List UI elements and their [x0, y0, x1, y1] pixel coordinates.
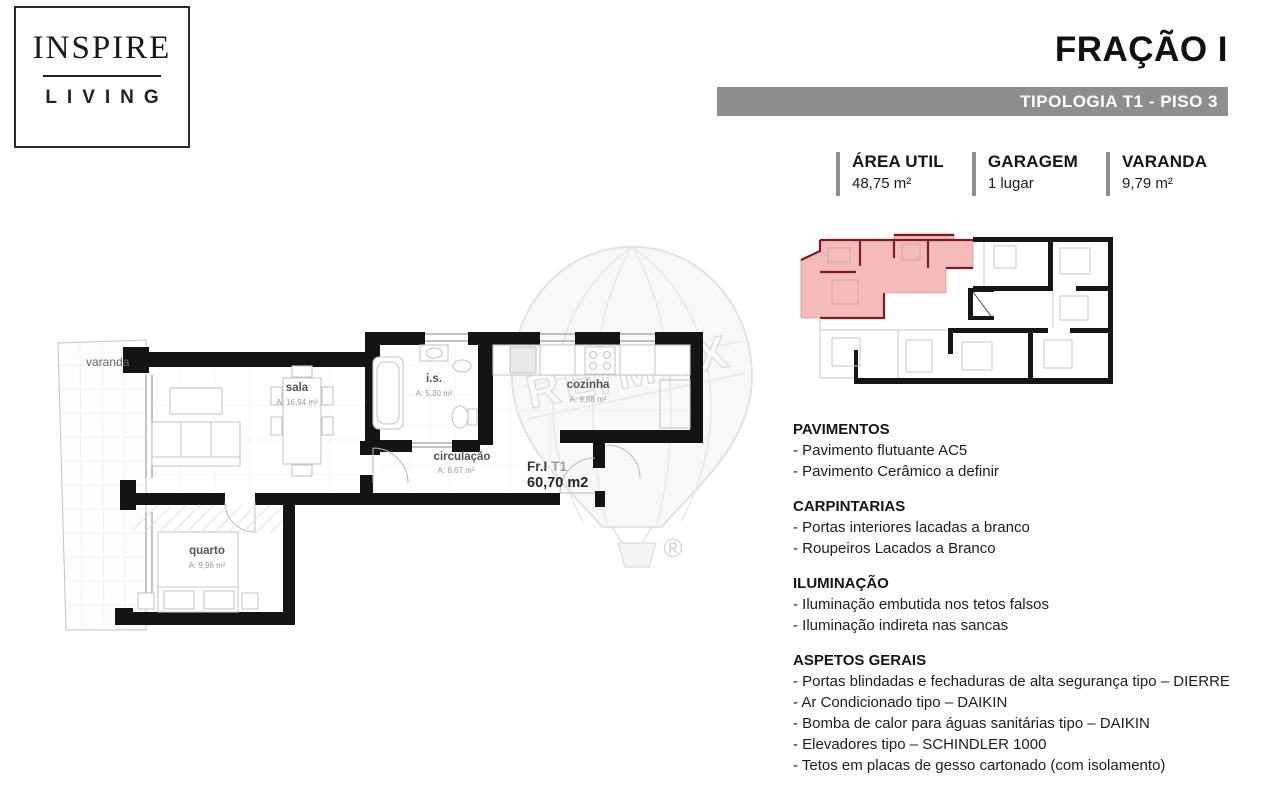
stat-divider [1106, 152, 1110, 196]
room-label-sala: sala [286, 382, 309, 394]
quarto-hatch [132, 505, 282, 533]
logo-text-living: LIVING [16, 87, 188, 109]
unit-area-label: 60,70 m2 [527, 475, 588, 491]
registered-mark: ® [663, 533, 682, 563]
stat-label: ÁREA UTIL [852, 152, 944, 172]
logo-text-inspire: INSPIRE [16, 30, 188, 67]
section-pavimentos: PAVIMENTOS - Pavimento flutuante AC5 - P… [793, 419, 1263, 482]
room-area-is: A: 5,30 m² [416, 389, 453, 398]
section-item: - Pavimento Cerâmico a definir [793, 461, 1263, 482]
room-area-quarto: A: 9,96 m² [189, 561, 226, 570]
stat-value: 48,75 m² [852, 175, 944, 192]
section-iluminacao: ILUMINAÇÃO - Iluminação embutida nos tet… [793, 573, 1263, 636]
balloon-basket [618, 543, 656, 567]
section-title: ILUMINAÇÃO [793, 573, 1263, 594]
unit-floor-plan: RE/MAX ® [30, 235, 770, 655]
inspire-living-logo: INSPIRE LIVING [14, 6, 190, 148]
room-label-is: i.s. [426, 373, 442, 385]
page-title: FRAÇÃO I [628, 30, 1228, 70]
section-item: - Tetos em placas de gesso cartonado (co… [793, 755, 1263, 776]
stat-label: VARANDA [1122, 152, 1207, 172]
section-title: ASPETOS GERAIS [793, 650, 1263, 671]
section-item: - Iluminação indireta nas sancas [793, 615, 1263, 636]
section-title: CARPINTARIAS [793, 496, 1263, 517]
typology-bar-label: TIPOLOGIA T1 - PISO 3 [1020, 92, 1228, 112]
brochure-page: INSPIRE LIVING FRAÇÃO I TIPOLOGIA T1 - P… [0, 0, 1280, 790]
room-label-quarto: quarto [189, 545, 225, 557]
section-item: - Roupeiros Lacados a Branco [793, 538, 1263, 559]
room-area-circulacao: A: 6,67 m² [438, 466, 475, 475]
specs-column: PAVIMENTOS - Pavimento flutuante AC5 - P… [793, 419, 1263, 790]
section-item: - Iluminação embutida nos tetos falsos [793, 594, 1263, 615]
section-item: - Ar Condicionado tipo – DAIKIN [793, 692, 1263, 713]
logo-divider [43, 75, 161, 77]
section-item: - Elevadores tipo – SCHINDLER 1000 [793, 734, 1263, 755]
highlighted-unit-region [801, 234, 973, 318]
remax-balloon-watermark: RE/MAX ® [512, 247, 752, 567]
section-carpintarias: CARPINTARIAS - Portas interiores lacadas… [793, 496, 1263, 559]
stat-varanda: VARANDA 9,79 m² [1106, 152, 1235, 196]
stat-value: 1 lugar [988, 175, 1078, 192]
stats-row: ÁREA UTIL 48,75 m² GARAGEM 1 lugar VARAN… [836, 152, 1235, 196]
stat-divider [836, 152, 840, 196]
stat-divider [972, 152, 976, 196]
room-label-cozinha: cozinha [567, 379, 610, 391]
section-aspetos-gerais: ASPETOS GERAIS - Portas blindadas e fech… [793, 650, 1263, 776]
section-item: - Bomba de calor para águas sanitárias t… [793, 713, 1263, 734]
section-title: PAVIMENTOS [793, 419, 1263, 440]
stat-value: 9,79 m² [1122, 175, 1207, 192]
stat-garagem: GARAGEM 1 lugar [972, 152, 1106, 196]
stat-area-util: ÁREA UTIL 48,75 m² [836, 152, 972, 196]
typology-bar: TIPOLOGIA T1 - PISO 3 [717, 87, 1228, 116]
room-label-varanda: varanda [86, 355, 130, 369]
building-overview-plan [798, 230, 1122, 396]
section-item: - Portas interiores lacadas a branco [793, 517, 1263, 538]
room-area-sala: A: 16,94 m² [276, 398, 318, 407]
stat-label: GARAGEM [988, 152, 1078, 172]
section-item: - Pavimento flutuante AC5 [793, 440, 1263, 461]
section-item: - Portas blindadas e fechaduras de alta … [793, 671, 1263, 692]
room-label-circulacao: circulação [434, 451, 491, 463]
room-area-cozinha: A: 9,88 m² [570, 395, 607, 404]
unit-id-label: Fr.IT1 [527, 459, 568, 474]
